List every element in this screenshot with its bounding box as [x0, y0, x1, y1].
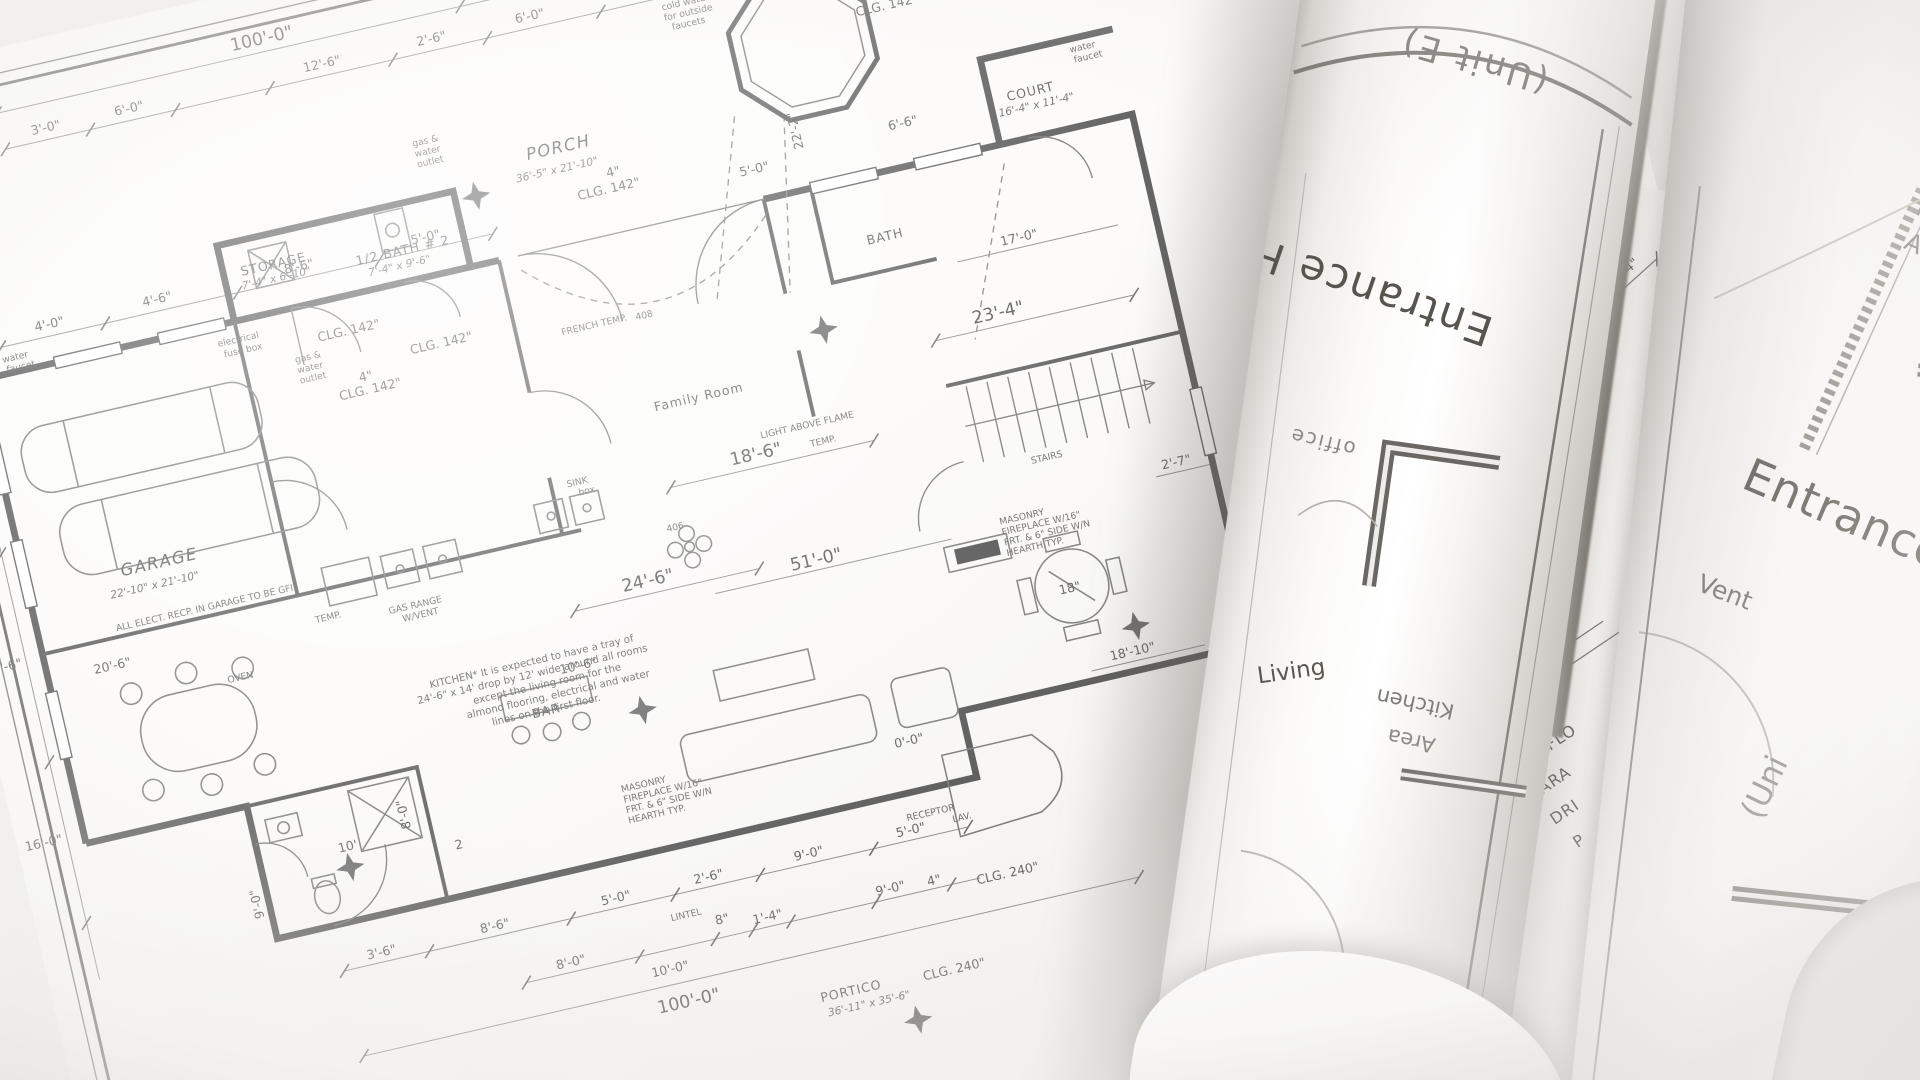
dim-label: 8" [713, 910, 730, 928]
legend-line: P [1569, 830, 1588, 852]
roll-1-area-label: Area [1385, 724, 1437, 758]
dim-label: 6'-0" [513, 5, 545, 26]
dim-label: 6'-0" [113, 98, 145, 119]
roll-2-unit-label: (Uni [1733, 749, 1796, 824]
sink-label: box [577, 484, 596, 499]
ceiling-label: CLG. 142" [316, 316, 381, 345]
dim-label: 12'-6" [302, 52, 342, 75]
table-diameter-label: 18" [1057, 578, 1082, 598]
ceiling-label: CLG. 240" [921, 954, 986, 983]
roll-2-labels: Bath Kitchen Area Entrance Vent (Uni [1671, 22, 1920, 843]
dim-label: 23'-4" [970, 298, 1026, 329]
roll-1-kitchen-label: Kitchen [1374, 684, 1456, 724]
dim-label: 20'-6" [92, 654, 132, 677]
dim-label: 8'-0" [393, 798, 414, 830]
dim-label: 4" [605, 163, 622, 181]
octagon-tower [719, 0, 887, 130]
light-above-note: LIGHT ABOVE FLAME [759, 409, 855, 441]
roll-2-entrance-label: Entrance [1735, 447, 1920, 580]
french-temp-label: FRENCH TEMP. [560, 312, 628, 338]
dim-label: 5'-0" [599, 887, 631, 908]
dim-label: 51'-0" [788, 545, 844, 576]
dim-label: 1'-4" [751, 906, 783, 927]
door-number: 408 [634, 308, 654, 323]
dim-label: 9'-0" [874, 877, 906, 898]
dim-label: 100'-0" [228, 22, 294, 56]
roll-1-living-label: Living [1256, 654, 1327, 689]
temp-label: TEMP. [313, 609, 342, 626]
dim-label: 24'-6" [620, 566, 676, 597]
dim-label: 3'-6" [365, 941, 397, 962]
room-label-bath: BATH [865, 225, 905, 248]
door-number: 406 [665, 520, 685, 535]
legend-line: DRI [1546, 795, 1582, 828]
dim-label: 8'-0" [555, 951, 587, 972]
dim-label: 18'-6" [728, 439, 784, 470]
ceiling-label: CLG. 240" [975, 859, 1040, 888]
dim-label: 2'-6" [415, 28, 447, 49]
dim-label: 10' [336, 837, 358, 856]
dashed-lines [498, 60, 1041, 436]
roll-2-vent-label: Vent [1694, 569, 1757, 616]
temp-label: TEMP. [808, 433, 837, 450]
dim-label: 8'-6" [478, 915, 510, 936]
room-label-family: Family Room [653, 379, 745, 414]
dim-label: 4'-6" [141, 288, 173, 309]
dim-label: 2'-6" [692, 866, 724, 887]
dim-label: 4'-0" [33, 313, 65, 334]
dim-label: 4" [357, 367, 374, 385]
ceiling-label: CLG. 142" [854, 0, 919, 19]
dim-label: 10'-0" [650, 957, 690, 980]
roll-2-area-label: Area [1900, 227, 1920, 277]
dim-label: 9'-0" [792, 843, 824, 864]
dim-label: 6'-6" [886, 112, 918, 133]
blueprint-photo: 100'-0" 3'-0" 6'-0" 12'-6" 2'-6" 6'-0" 2… [0, 0, 1920, 1080]
dim-label: 100'-0" [656, 985, 722, 1019]
room-label-stairs: STAIRS [1030, 449, 1064, 467]
lintel-label: LINTEL [670, 906, 704, 924]
ceiling-label: CLG. 142" [408, 328, 473, 357]
dim-label: 17'-0" [999, 226, 1039, 249]
dim-label: 5'-0" [738, 158, 770, 179]
dim-label: 3'-0" [29, 117, 61, 138]
roll-1-office-label: office [1287, 423, 1358, 461]
receptor-label: RECEPTOR [905, 802, 956, 824]
room-label-oven: OVEN [226, 670, 254, 687]
dim-label: 4" [925, 871, 942, 889]
